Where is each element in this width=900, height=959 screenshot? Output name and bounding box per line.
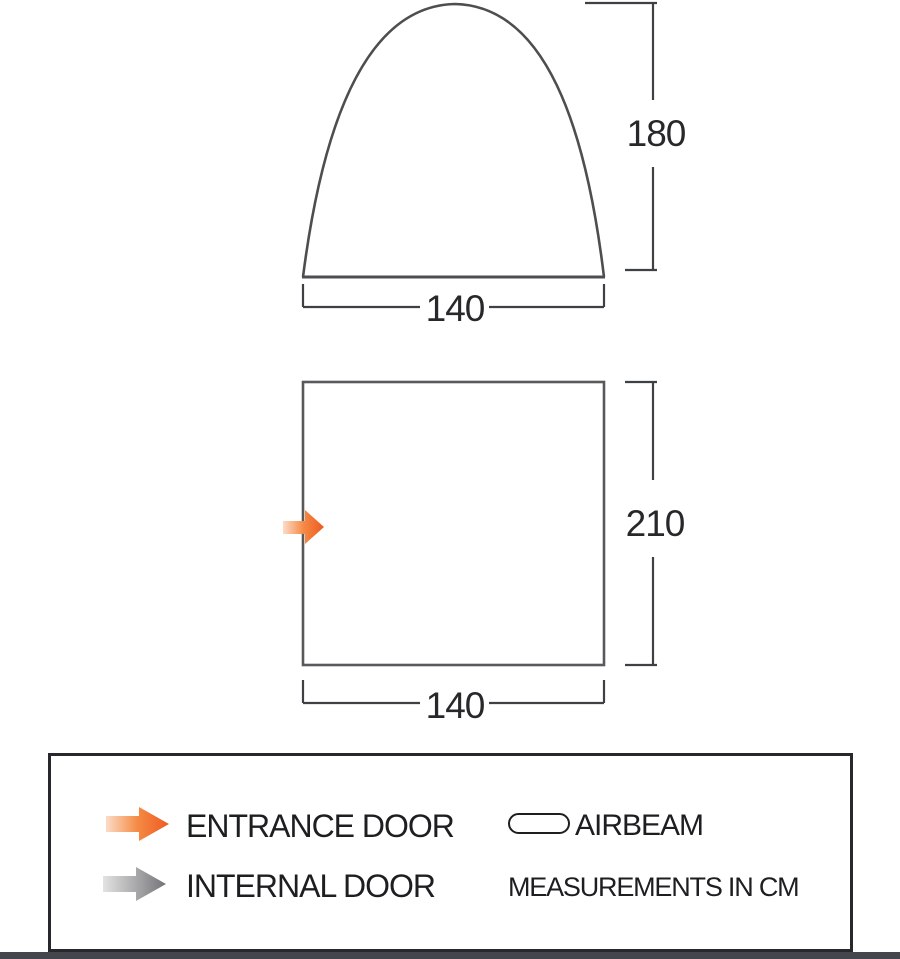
front-view-svg: 180 140 xyxy=(0,0,900,360)
measurements-note: MEASUREMENTS IN CM xyxy=(508,874,798,901)
tent-front-outline xyxy=(303,4,604,277)
airbeam-label: AIRBEAM xyxy=(575,811,703,841)
internal-door-arrow-icon xyxy=(103,866,167,902)
front-height-value: 180 xyxy=(627,113,686,154)
bottom-edge-band xyxy=(0,952,900,959)
tent-dimensions-diagram: 180 140 210 xyxy=(0,0,900,959)
plan-width-value: 140 xyxy=(426,685,485,726)
entrance-door-arrow-icon xyxy=(106,806,170,842)
plan-depth-value: 210 xyxy=(626,503,685,544)
internal-door-label: INTERNAL DOOR xyxy=(186,870,435,902)
floor-plan-outline xyxy=(303,382,604,665)
airbeam-icon xyxy=(508,813,570,834)
floor-plan-svg: 210 140 xyxy=(0,360,900,760)
legend-box: ENTRANCE DOOR AIRBEAM INTERNAL DOOR MEAS… xyxy=(48,753,853,952)
entrance-door-label: ENTRANCE DOOR xyxy=(186,810,454,842)
front-width-value: 140 xyxy=(426,288,485,329)
